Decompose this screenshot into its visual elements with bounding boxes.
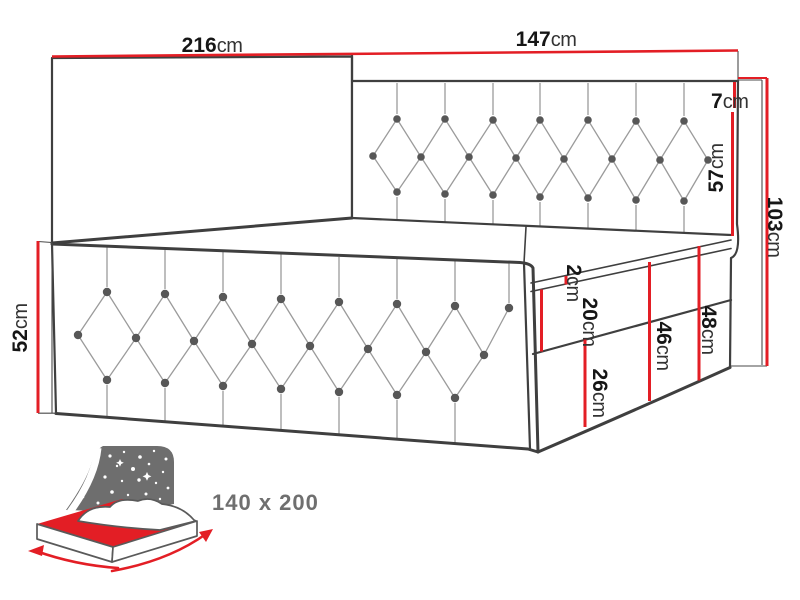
side-panel <box>52 244 538 452</box>
diagram-canvas: 216cm 147cm 7cm 57cm 103cm 52cm 2cm 20cm… <box>0 0 800 600</box>
dim-headboard-top-label: 7cm <box>711 90 748 113</box>
bed-size-label: 140 x 200 <box>212 490 319 515</box>
dim-width-label: 147cm <box>516 28 577 51</box>
dim-mattress-label: 20cm <box>578 297 601 346</box>
dim-length-line <box>52 51 738 57</box>
dim-base-lower-label: 26cm <box>588 368 611 417</box>
bed-size-icon: 140 x 200 <box>28 446 319 571</box>
bed-top-surface <box>52 57 352 244</box>
dim-base-upper-label: 46cm <box>652 321 675 370</box>
dim-base-total-label: 48cm <box>697 305 720 354</box>
headboard <box>352 55 738 258</box>
dim-piping-label: 2cm <box>562 264 585 301</box>
dim-headboard-label: 57cm <box>705 143 728 192</box>
dim-side-label: 52cm <box>9 303 32 352</box>
dim-height-label: 103cm <box>763 197 786 258</box>
dim-length-label: 216cm <box>182 34 243 57</box>
bed-dimension-diagram: 216cm 147cm 7cm 57cm 103cm 52cm 2cm 20cm… <box>0 0 800 600</box>
bed-pictogram <box>28 499 213 571</box>
